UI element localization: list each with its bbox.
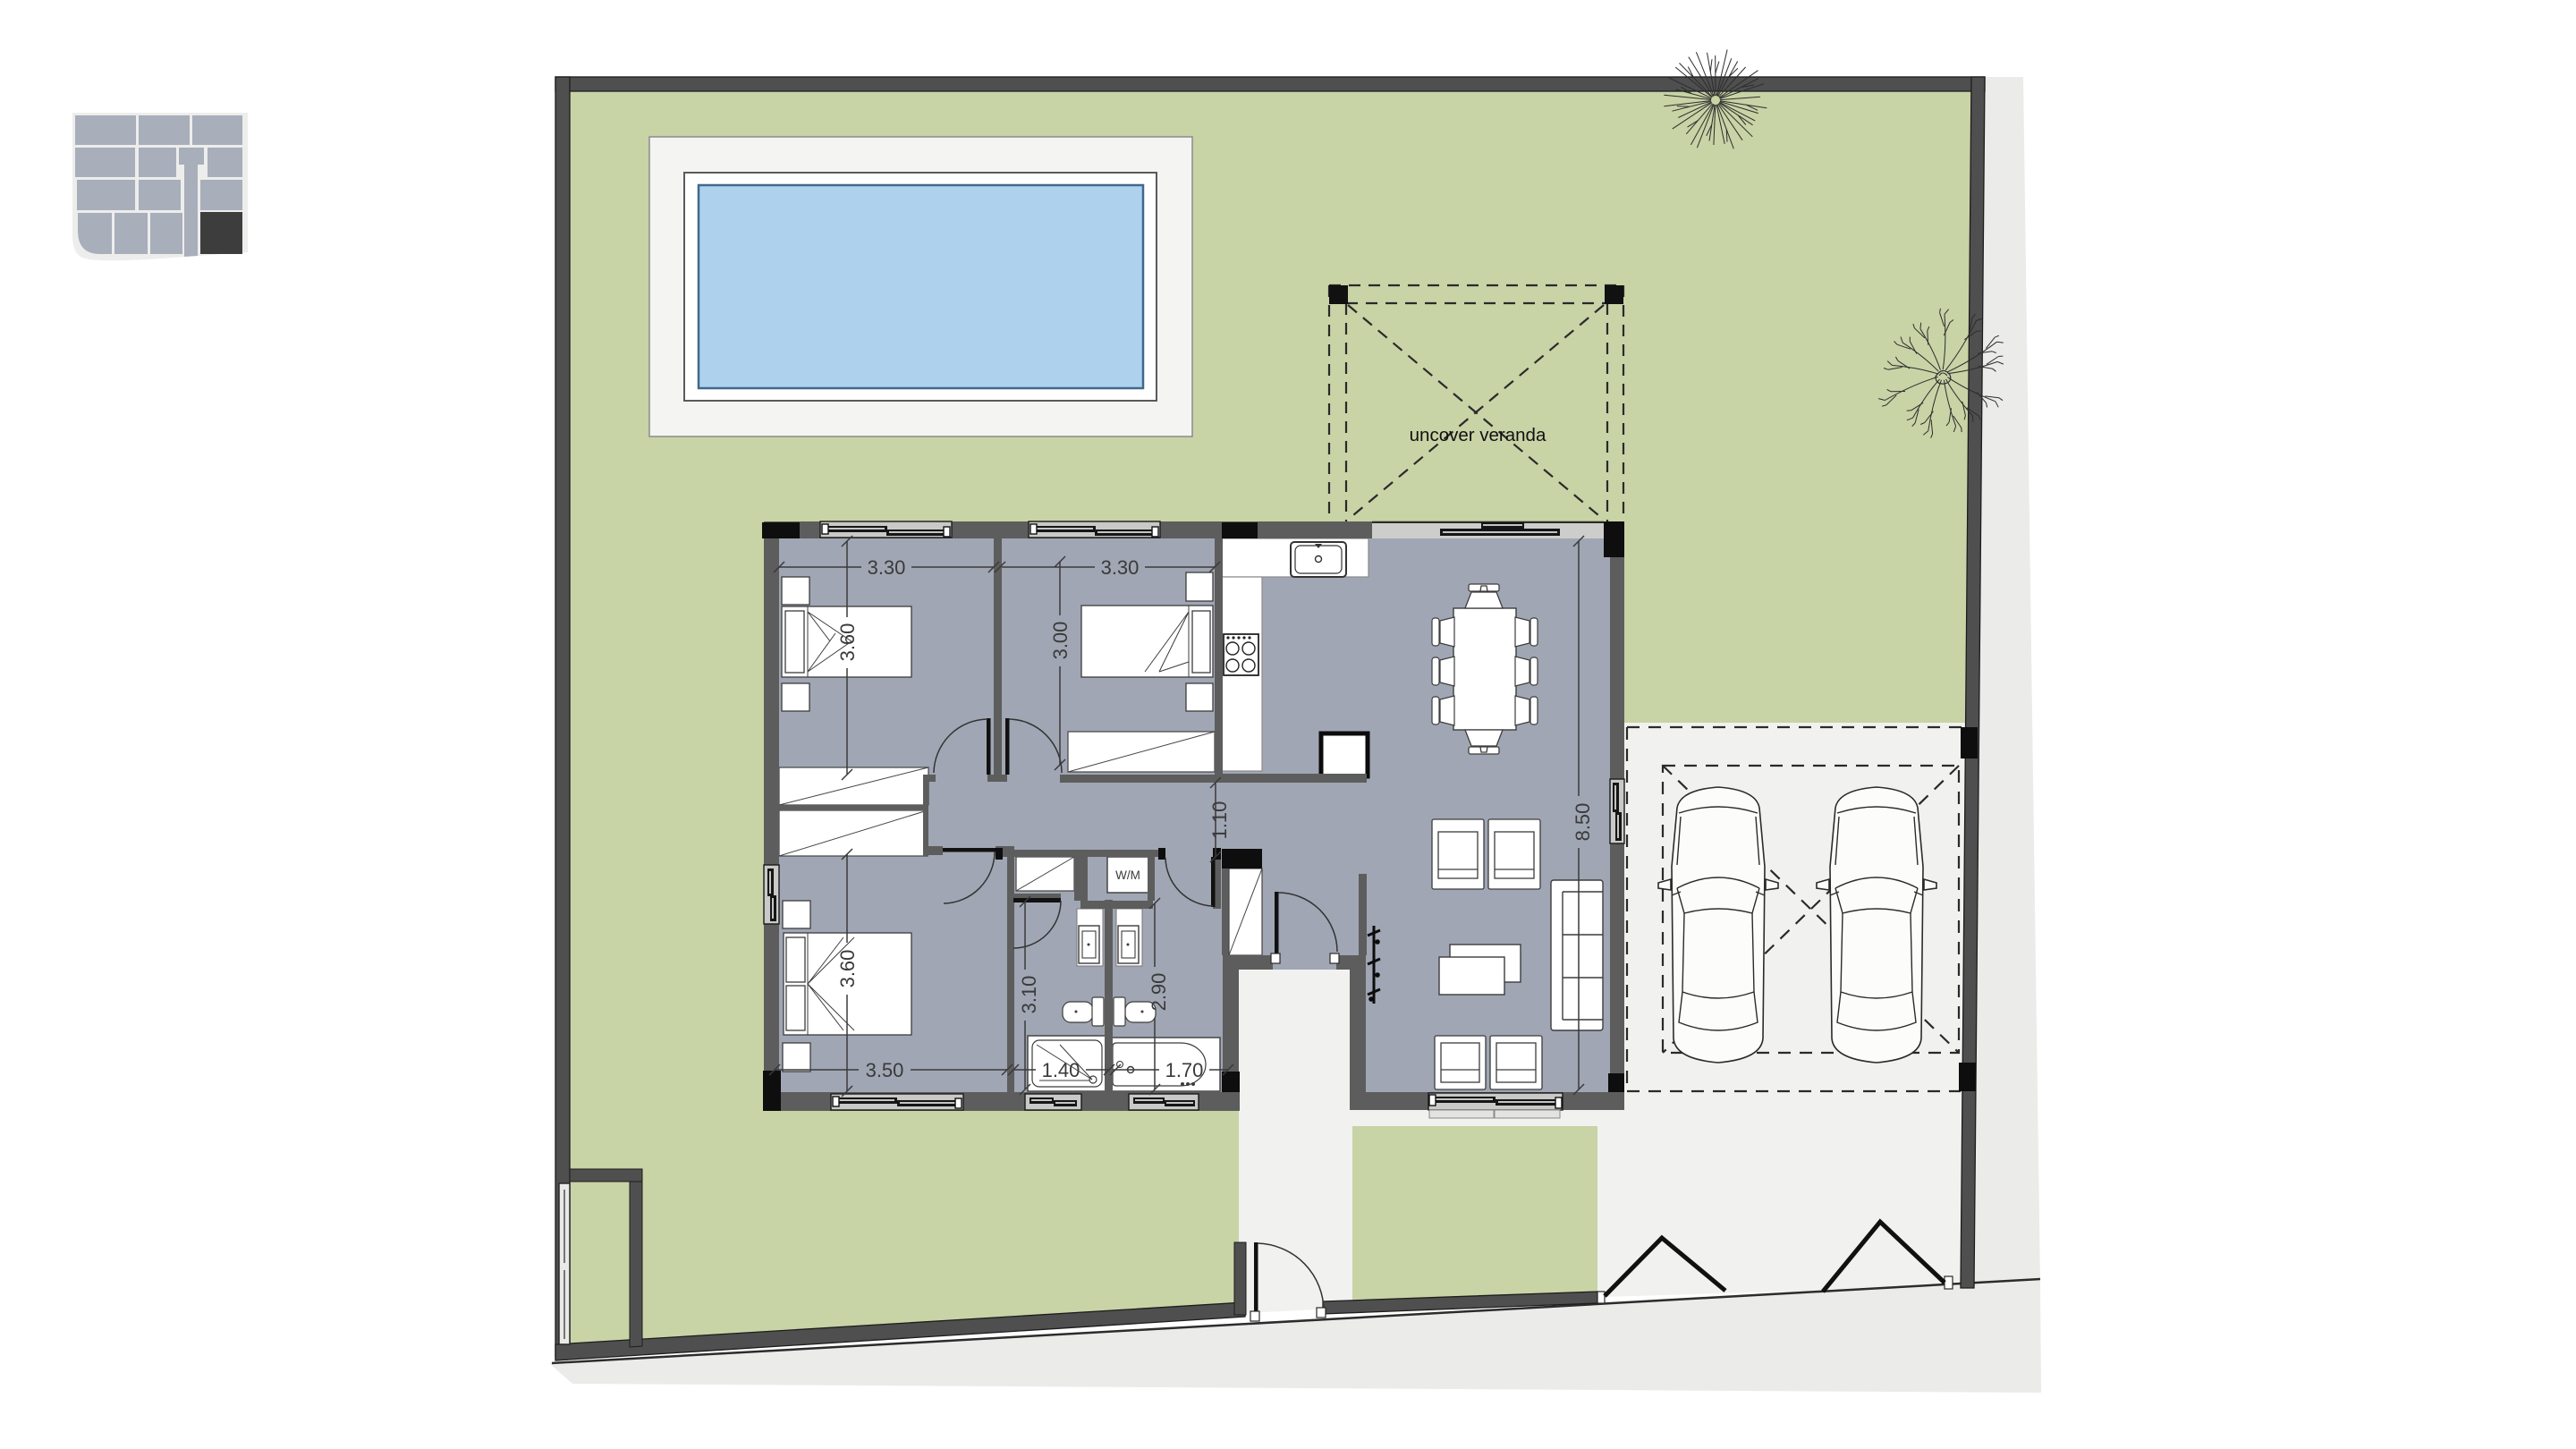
svg-text:8.50: 8.50 <box>1572 803 1594 842</box>
svg-text:3.10: 3.10 <box>1018 976 1040 1014</box>
svg-text:3.50: 3.50 <box>866 1059 904 1081</box>
svg-text:3.30: 3.30 <box>868 556 906 579</box>
svg-text:W/M: W/M <box>1115 869 1140 882</box>
svg-text:1.70: 1.70 <box>1165 1059 1204 1081</box>
svg-text:2.90: 2.90 <box>1148 973 1170 1012</box>
svg-text:3.00: 3.00 <box>1049 622 1072 660</box>
svg-text:3.60: 3.60 <box>836 623 859 662</box>
svg-text:3.30: 3.30 <box>1101 556 1140 579</box>
svg-text:1.40: 1.40 <box>1042 1059 1080 1081</box>
svg-text:1.10: 1.10 <box>1208 801 1231 840</box>
svg-text:3.60: 3.60 <box>836 950 859 988</box>
svg-text:uncover veranda: uncover veranda <box>1410 425 1546 445</box>
